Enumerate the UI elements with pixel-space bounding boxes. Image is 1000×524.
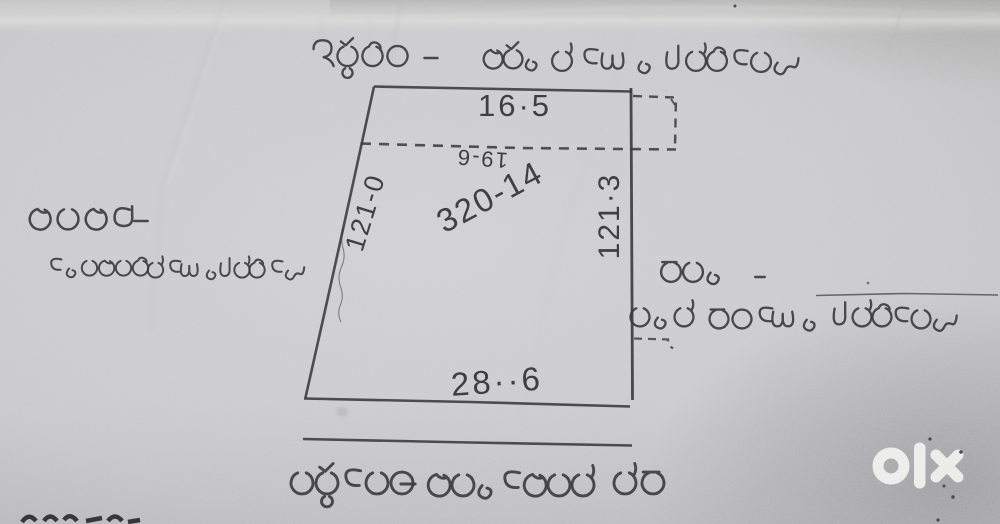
svg-text:28··6: 28··6 xyxy=(450,360,544,403)
svg-text:16·5: 16·5 xyxy=(478,88,552,123)
svg-text:121·3: 121·3 xyxy=(593,173,626,260)
